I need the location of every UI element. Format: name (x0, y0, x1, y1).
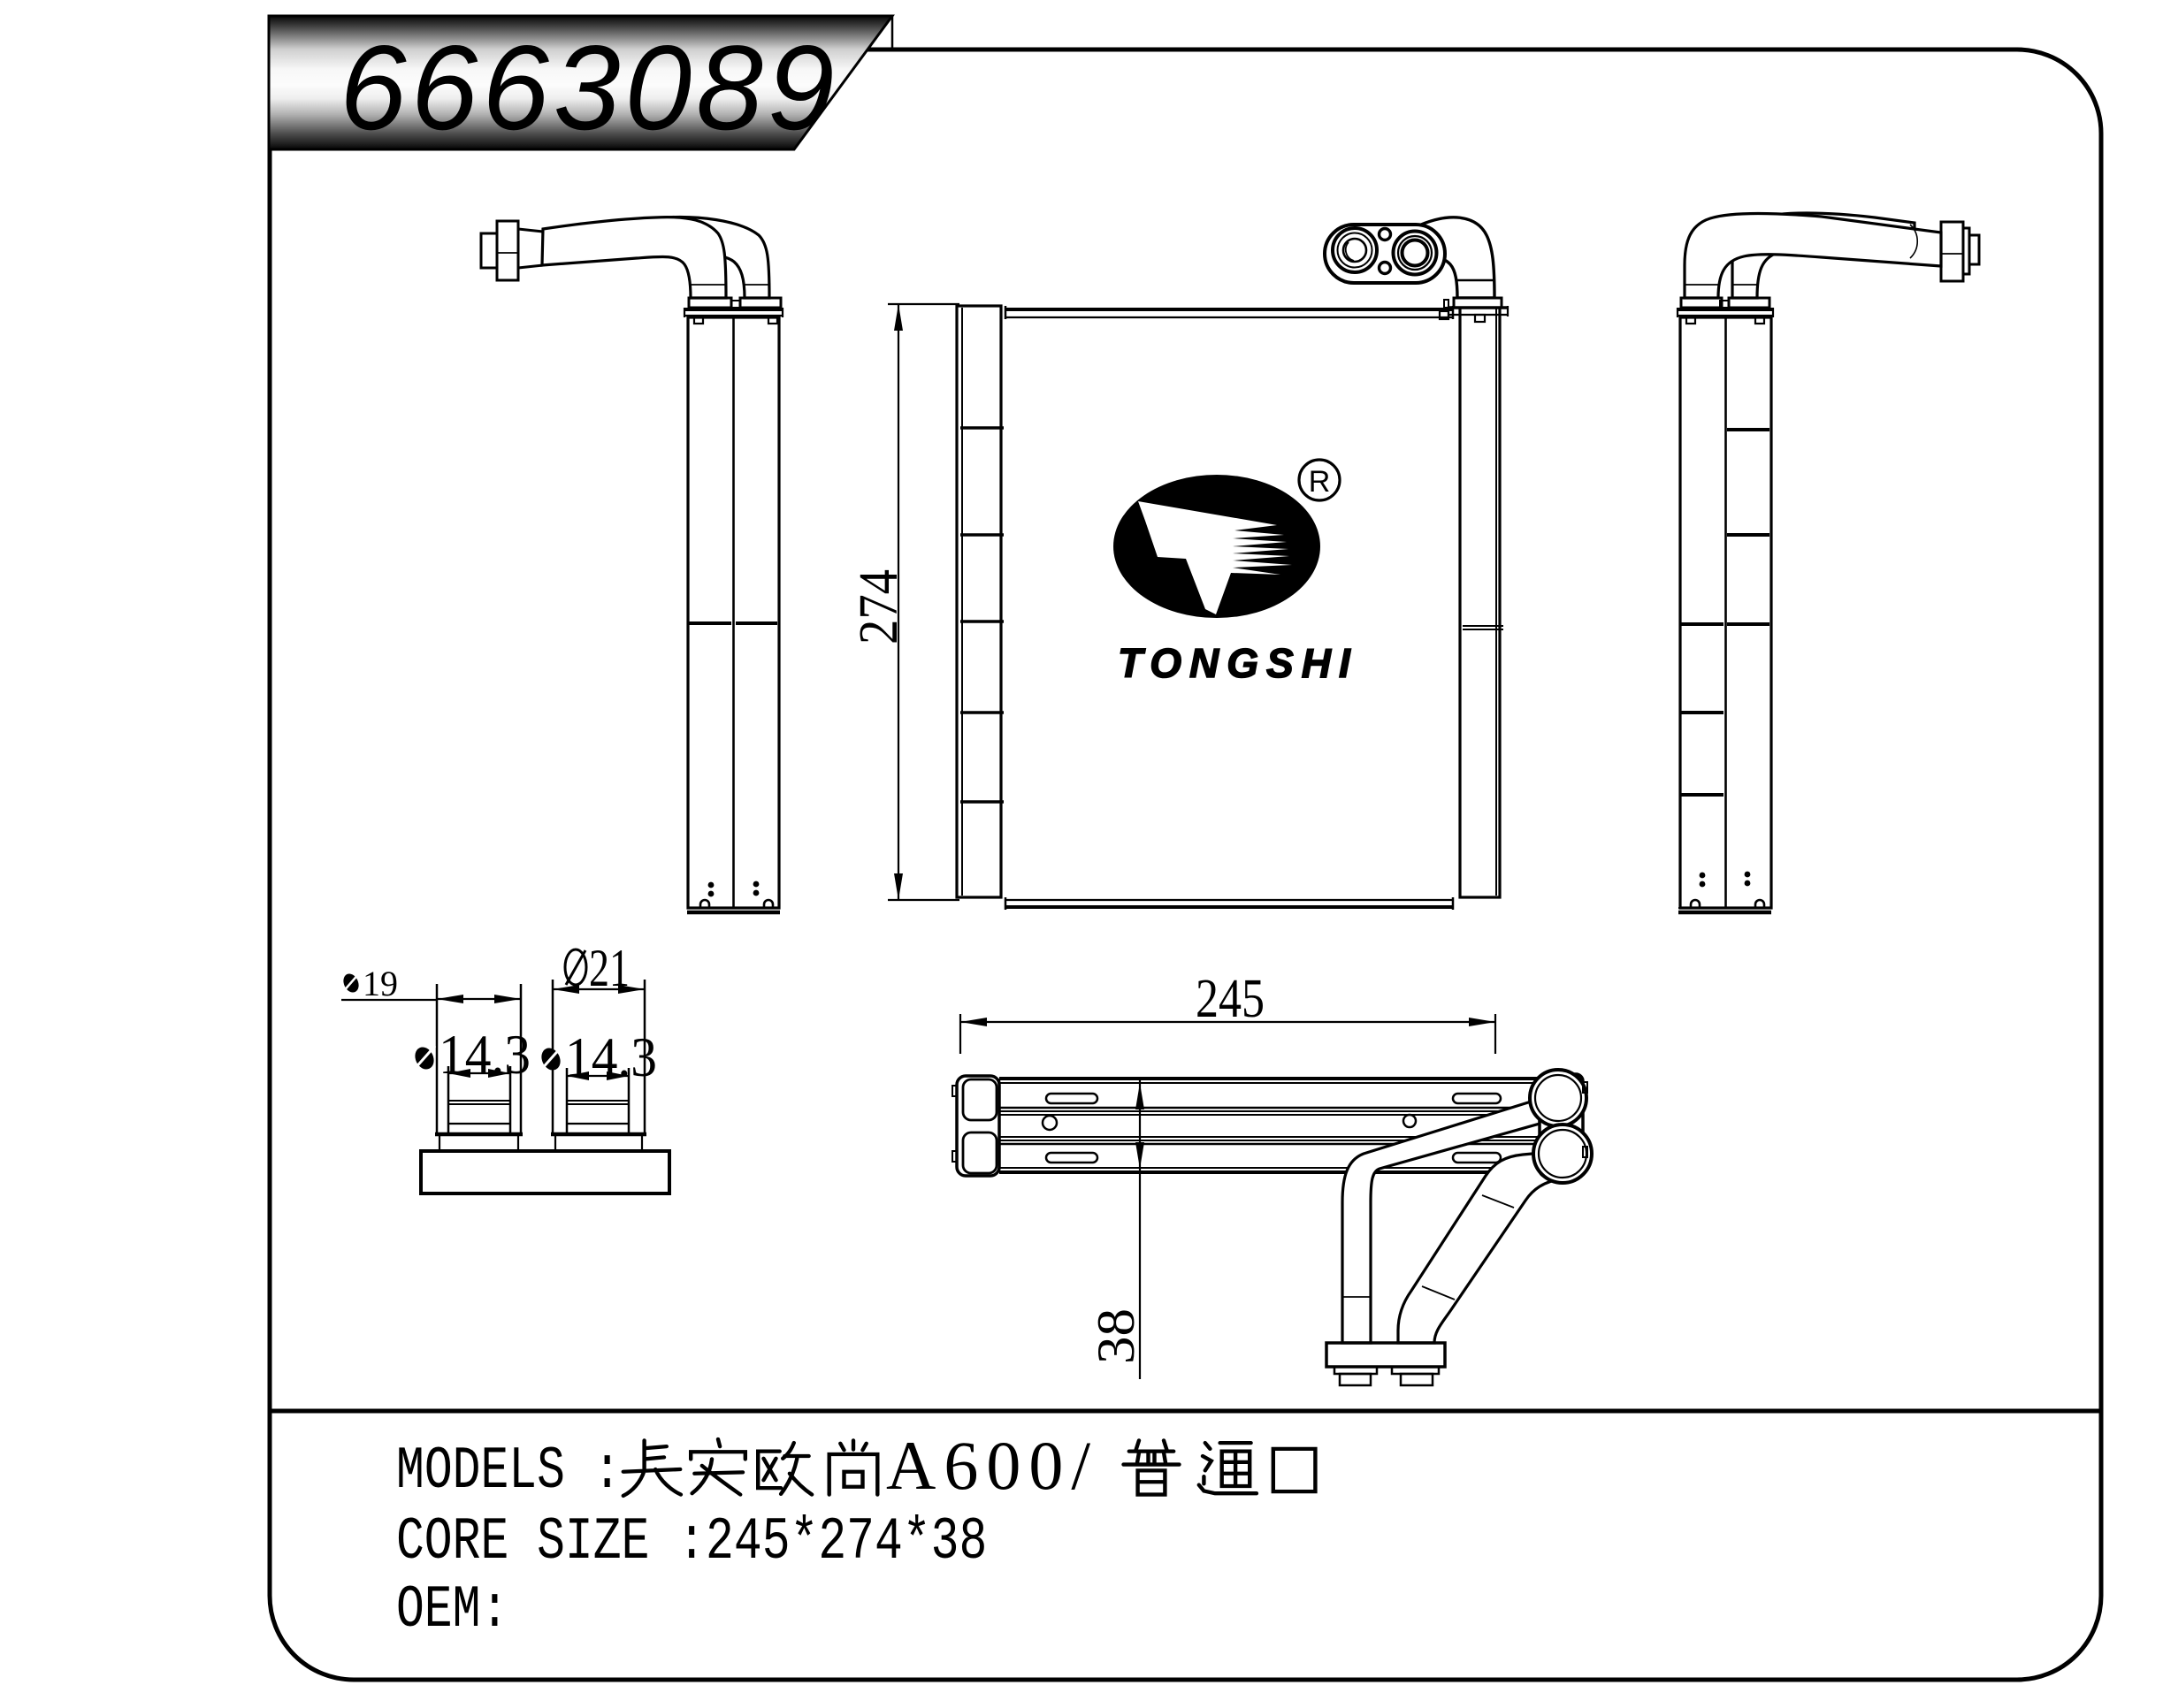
svg-text:19: 19 (363, 964, 398, 1003)
svg-text:CORE SIZE :245*274*38: CORE SIZE :245*274*38 (396, 1508, 987, 1576)
svg-text:A600/: A600/ (886, 1427, 1098, 1504)
svg-text:274: 274 (849, 569, 909, 644)
svg-text:14.3: 14.3 (439, 1023, 531, 1086)
svg-text:245: 245 (1196, 969, 1265, 1029)
svg-text:MODELS :: MODELS : (396, 1437, 622, 1506)
svg-text:R: R (1309, 465, 1331, 499)
svg-text:14.3: 14.3 (565, 1026, 657, 1088)
svg-text:38: 38 (1087, 1308, 1145, 1364)
svg-text:6663089: 6663089 (340, 20, 838, 155)
svg-text:TONGSHI: TONGSHI (1118, 640, 1358, 686)
svg-text:OEM:: OEM: (396, 1576, 508, 1644)
